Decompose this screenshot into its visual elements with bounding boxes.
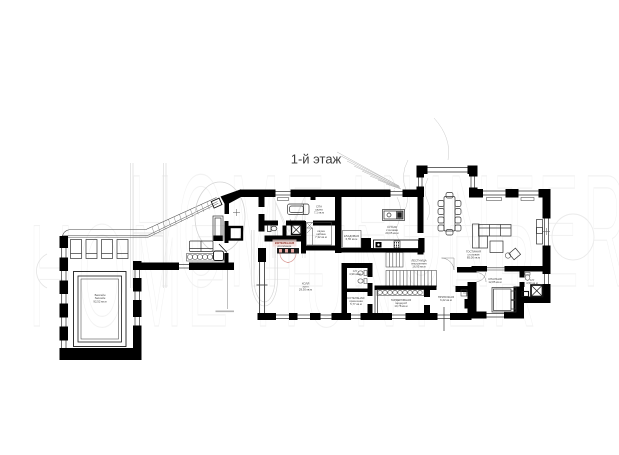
- svg-text:85,00 кв.м: 85,00 кв.м: [467, 256, 480, 260]
- svg-text:10,78 кв.м: 10,78 кв.м: [394, 304, 407, 308]
- svg-text:1-й этаж: 1-й этаж: [291, 152, 342, 167]
- svg-text:12,85 кв.м: 12,85 кв.м: [488, 280, 501, 284]
- svg-text:5,77 кв.м: 5,77 кв.м: [350, 302, 362, 306]
- svg-text:29,30 кв.м: 29,30 кв.м: [299, 288, 312, 292]
- svg-text:16,95 кв.м: 16,95 кв.м: [412, 265, 425, 269]
- svg-text:4,99 кв.м: 4,99 кв.м: [349, 272, 361, 276]
- svg-text:7,32 кв.м: 7,32 кв.м: [315, 235, 327, 239]
- svg-text:92,52 кв.м: 92,52 кв.м: [93, 300, 106, 304]
- svg-text:7,1 кв.м: 7,1 кв.м: [314, 211, 324, 215]
- svg-text:4,50 кв.м: 4,50 кв.м: [526, 281, 538, 285]
- svg-text:отопление: отопление: [278, 244, 292, 248]
- svg-text:6,55 кв.м: 6,55 кв.м: [346, 237, 358, 241]
- svg-text:6,22 кв.м: 6,22 кв.м: [440, 298, 452, 302]
- svg-text:20,05 кв.м: 20,05 кв.м: [385, 231, 398, 235]
